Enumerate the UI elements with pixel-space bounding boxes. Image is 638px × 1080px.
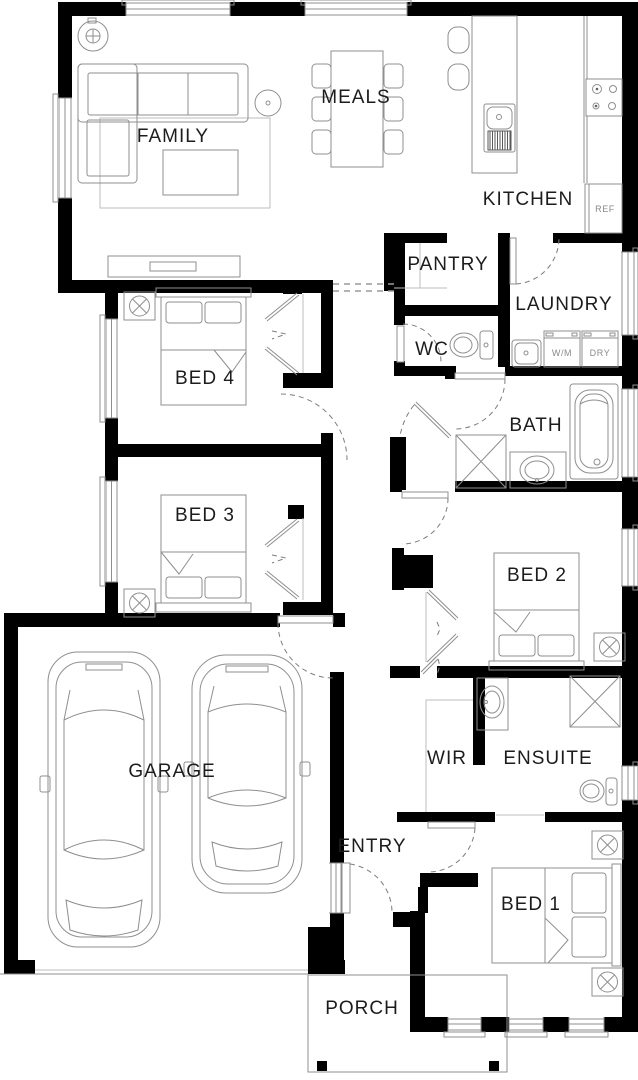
meals-area bbox=[312, 51, 403, 167]
wc-area bbox=[450, 331, 493, 359]
bed4-robe bbox=[265, 293, 303, 375]
doors bbox=[0, 238, 559, 974]
coffee-table bbox=[163, 150, 238, 195]
room-label-bath: BATH bbox=[509, 415, 562, 436]
door-bed2 bbox=[402, 492, 448, 544]
room-label-ensuite: ENSUITE bbox=[503, 748, 592, 769]
downlight-icon bbox=[124, 292, 155, 320]
room-label-entry: ENTRY bbox=[337, 836, 406, 857]
stool bbox=[448, 64, 469, 90]
car-large bbox=[40, 652, 168, 947]
downlight-icon bbox=[124, 589, 155, 617]
ensuite-area bbox=[477, 676, 620, 805]
window-meals-top bbox=[301, 0, 411, 16]
room-label-garage: GARAGE bbox=[128, 761, 215, 782]
bed1-bed bbox=[492, 864, 621, 966]
window-bed1-bottom-3 bbox=[565, 1017, 608, 1037]
downlight-icon bbox=[592, 831, 623, 859]
ceiling-fan-icon bbox=[78, 18, 108, 51]
bathtub bbox=[570, 384, 618, 479]
dining-chair bbox=[312, 64, 331, 88]
side-table bbox=[255, 90, 281, 116]
room-label-kitchen: KITCHEN bbox=[483, 189, 573, 210]
downlight-icon bbox=[594, 633, 625, 661]
washer-label: W/M bbox=[552, 348, 572, 358]
room-label-laundry: LAUNDRY bbox=[515, 294, 612, 315]
dining-chair bbox=[312, 130, 331, 154]
shower bbox=[456, 435, 506, 488]
window-family-top bbox=[122, 0, 234, 16]
porch-post bbox=[489, 1061, 499, 1071]
tv-unit bbox=[108, 256, 240, 277]
family-room bbox=[78, 18, 281, 277]
door-garage-internal bbox=[278, 616, 333, 678]
window-laundry-right bbox=[621, 248, 638, 339]
room-label-bed1: BED 1 bbox=[501, 894, 561, 915]
door-bath bbox=[455, 373, 505, 429]
laundry-area: W/M DRY bbox=[512, 331, 618, 367]
kitchen-sink bbox=[484, 104, 515, 152]
window-bed1-bottom-2 bbox=[505, 1017, 547, 1037]
window-bed2-right bbox=[621, 525, 638, 590]
porch-post bbox=[317, 1061, 327, 1071]
room-label-meals: MEALS bbox=[321, 87, 390, 108]
cooktop bbox=[586, 79, 622, 116]
garage-area bbox=[40, 652, 310, 947]
ensuite-shower bbox=[570, 676, 620, 727]
window-family-left bbox=[53, 94, 72, 202]
bath-area bbox=[456, 384, 618, 488]
window-bed3-left bbox=[100, 477, 118, 586]
bed3-robe bbox=[265, 518, 303, 600]
bed2-robe bbox=[426, 590, 458, 664]
room-label-wir: WIR bbox=[427, 748, 467, 769]
dining-table bbox=[331, 51, 383, 167]
dryer-label: DRY bbox=[590, 348, 611, 358]
floor-plan-page: REF W/M DRY bbox=[0, 0, 638, 1080]
ensuite-toilet bbox=[580, 778, 617, 805]
room-label-porch: PORCH bbox=[325, 998, 399, 1019]
window-bed1-bottom-1 bbox=[444, 1017, 485, 1037]
room-label-family: FAMILY bbox=[137, 126, 209, 147]
wc-toilet bbox=[450, 331, 493, 359]
downlight-icon bbox=[592, 968, 623, 996]
fridge: REF bbox=[585, 184, 622, 233]
room-label-bed4: BED 4 bbox=[175, 368, 235, 389]
dining-chair bbox=[384, 130, 403, 154]
window-bed4-left bbox=[100, 315, 118, 422]
room-label-bed3: BED 3 bbox=[175, 505, 235, 526]
dining-chair bbox=[384, 64, 403, 88]
room-label-wc: WC bbox=[415, 339, 449, 360]
floor-plan-canvas: REF W/M DRY bbox=[0, 0, 638, 1080]
laundry-tub bbox=[512, 340, 541, 367]
door-bed1 bbox=[428, 822, 475, 872]
door-laundry bbox=[510, 238, 559, 284]
stool bbox=[448, 27, 469, 53]
room-label-bed2: BED 2 bbox=[507, 565, 567, 586]
room-label-pantry: PANTRY bbox=[407, 254, 488, 275]
washing-machine: W/M bbox=[544, 331, 580, 367]
fridge-label: REF bbox=[595, 204, 615, 214]
window-ensuite-right bbox=[621, 762, 638, 804]
dryer: DRY bbox=[582, 331, 618, 367]
door-hall-bathwing bbox=[400, 402, 451, 438]
garage-door-line bbox=[0, 970, 308, 974]
window-bath-right bbox=[621, 385, 638, 481]
door-front-entry bbox=[342, 863, 392, 913]
